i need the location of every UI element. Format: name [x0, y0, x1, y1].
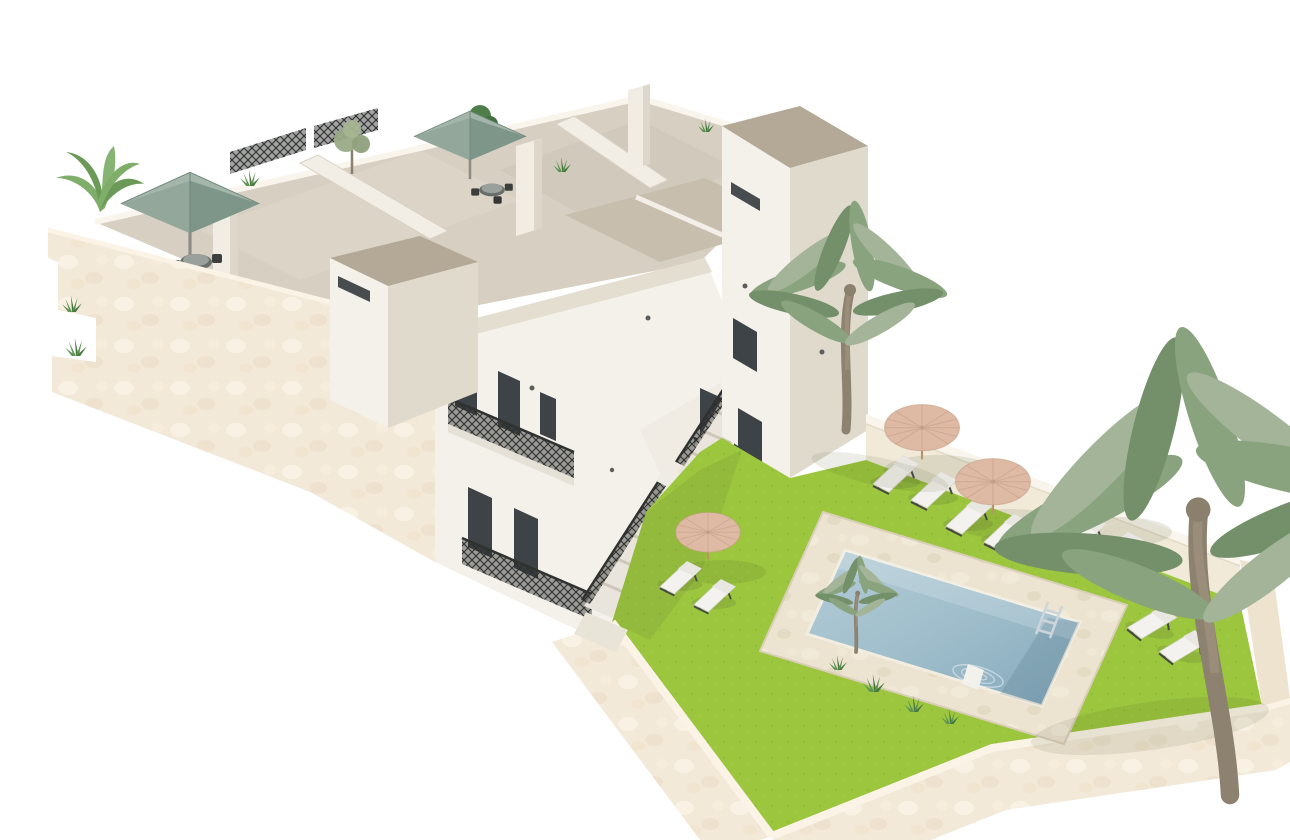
wall-lamp-icon — [646, 316, 651, 321]
window — [540, 392, 556, 441]
wall-lamp-icon — [610, 468, 614, 472]
wall-lamp-icon — [743, 284, 748, 289]
tower-left — [330, 236, 478, 428]
render-canvas: Bird's-eye 3D visualization of a white M… — [0, 0, 1290, 840]
wall-lamp-icon — [820, 350, 825, 355]
chimney — [516, 138, 542, 236]
wall-lamp-icon — [530, 386, 535, 391]
chimney — [628, 84, 650, 170]
architectural-render: Bird's-eye 3D visualization of a white M… — [0, 0, 1290, 840]
